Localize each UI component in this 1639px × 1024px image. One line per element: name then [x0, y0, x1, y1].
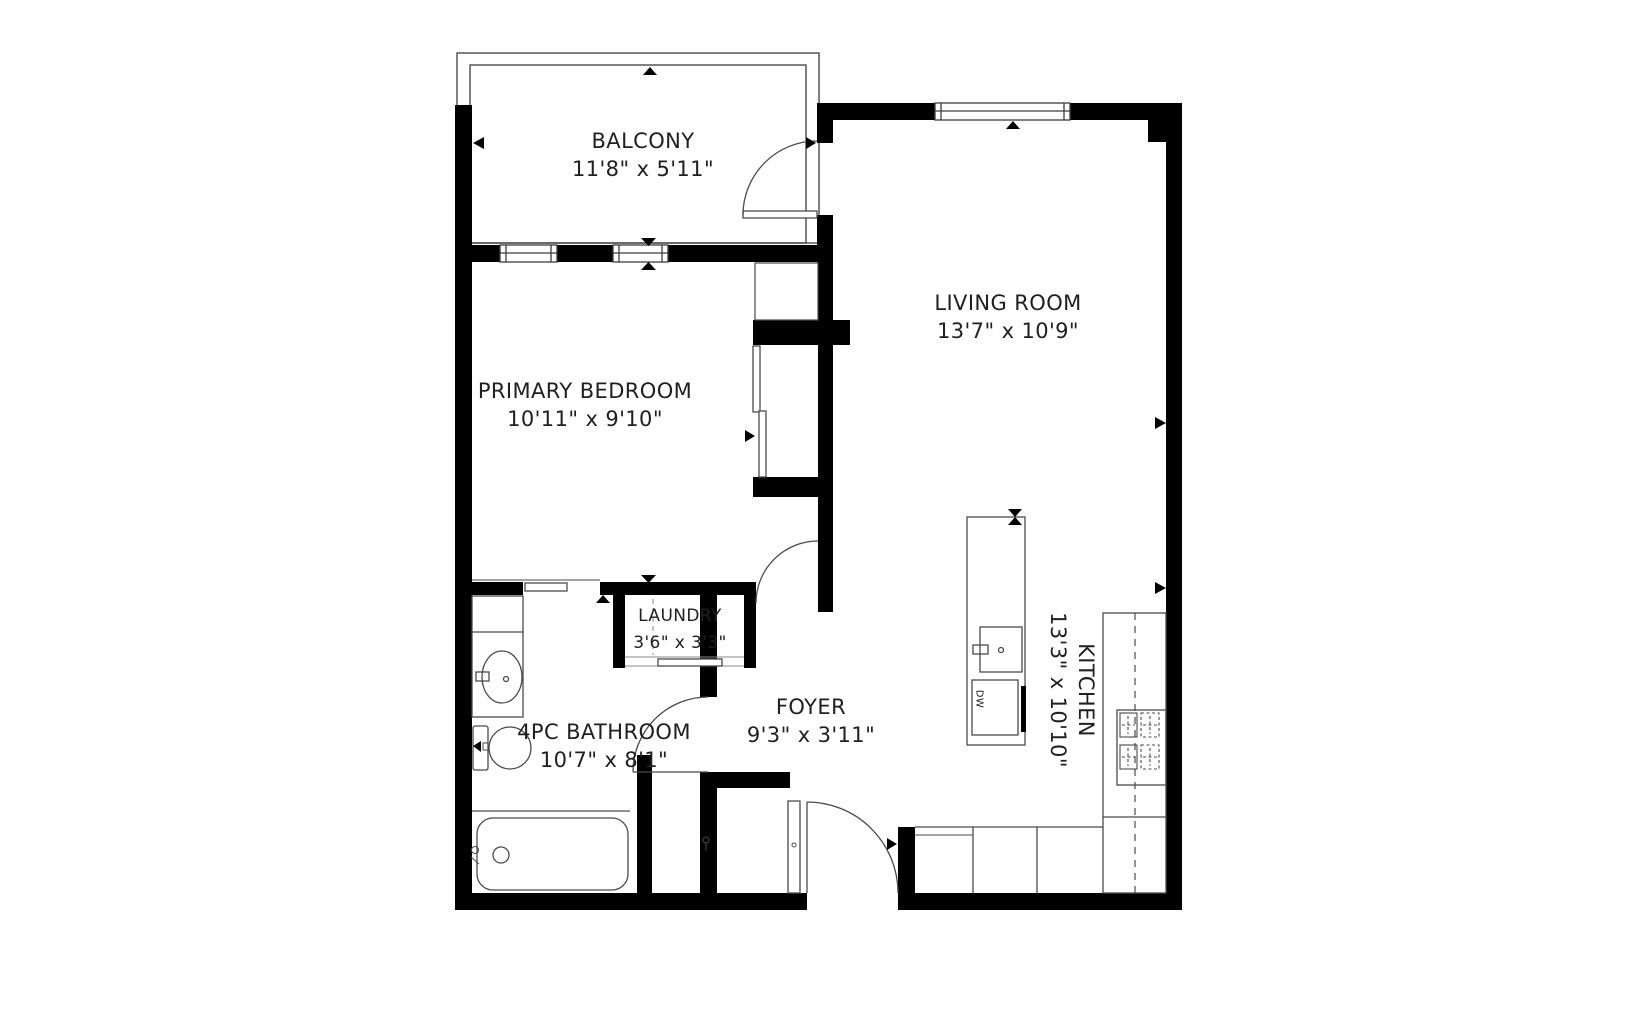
dishwasher-label: DW [974, 690, 985, 709]
arrow-right-icon [745, 430, 755, 442]
room-dims: 3'6" x 3'3" [633, 630, 727, 657]
wall-kitchen-stub [898, 827, 915, 893]
laundry-sliding-door [625, 657, 744, 666]
living-room-window [935, 103, 1070, 120]
floor-plan-drawing [0, 0, 1639, 1024]
wall-bedroom-top-c [668, 245, 833, 262]
arrow-right-icon [887, 838, 897, 850]
entry-door [807, 802, 898, 909]
arrow-up-icon [596, 595, 610, 603]
kitchen-island [967, 517, 1026, 745]
wall-laundry-left [613, 595, 625, 668]
kitchen-counter-bottom [915, 827, 1103, 893]
room-name: 4PC BATHROOM [517, 718, 691, 746]
wall-entry-closet-top [700, 772, 790, 788]
arrow-up-icon [641, 262, 656, 270]
wall-bedroom-top-b [557, 245, 613, 262]
room-name: FOYER [747, 693, 875, 721]
room-name: PRIMARY BEDROOM [478, 377, 692, 405]
wall-bathroom-top-b [600, 582, 756, 595]
laundry-label: LAUNDRY 3'6" x 3'3" [633, 603, 727, 657]
wall-closet-right [818, 345, 833, 477]
island-sink [980, 627, 1022, 672]
bedroom-window-2 [613, 245, 668, 262]
wall-bottom-left [455, 893, 807, 910]
living-room-niche [755, 263, 818, 320]
kitchen-label: KITCHEN 13'3" x 10'10" [1044, 612, 1100, 768]
room-name: BALCONY [572, 127, 714, 155]
stove-cooktop [1117, 710, 1166, 785]
wall-livingroom-top-a [817, 103, 935, 120]
room-name: LAUNDRY [633, 603, 727, 630]
primary-bedroom-label: PRIMARY BEDROOM 10'11" x 9'10" [478, 377, 692, 433]
kitchen-counter-right [1103, 613, 1166, 893]
arrow-right-icon [806, 137, 816, 149]
living-room-label: LIVING ROOM 13'7" x 10'9" [934, 289, 1081, 345]
wall-bedroom-top-a [455, 245, 500, 262]
appliance-name: DW [974, 690, 985, 709]
bedroom-closet-sliding-doors [753, 346, 766, 477]
arrow-up-icon [1006, 121, 1020, 129]
arrow-up-icon [643, 67, 657, 75]
wall-right [1166, 103, 1182, 910]
vanity-counter [472, 596, 523, 717]
wall-bottom-right [898, 893, 1182, 910]
room-name: LIVING ROOM [934, 289, 1081, 317]
walls [455, 103, 1182, 910]
wall-closet-bottom [753, 477, 833, 497]
arrow-down-icon [641, 575, 656, 583]
foyer-label: FOYER 9'3" x 3'11" [747, 693, 875, 749]
arrow-right-icon [1155, 582, 1166, 594]
room-dims: 10'7" x 8'1" [517, 746, 691, 774]
wall-corner-column [1148, 120, 1182, 142]
wall-laundry-right [744, 595, 756, 668]
wall-livingroom-left [818, 263, 833, 320]
arrow-right-icon [1155, 417, 1166, 429]
wall-balconydoor-top [817, 120, 833, 143]
bathtub [471, 811, 630, 890]
wall-left [455, 105, 472, 910]
wall-livingroom-top-b [1070, 103, 1166, 120]
entry-closet-door [788, 801, 800, 893]
wall-niche-bottom [753, 320, 850, 345]
bedroom-window-1 [500, 245, 557, 262]
wall-bathroom-top-a [472, 582, 523, 595]
room-dims: 13'3" x 10'10" [1044, 612, 1072, 768]
room-dims: 11'8" x 5'11" [572, 155, 714, 183]
wall-tub-side [637, 755, 652, 893]
room-dims: 9'3" x 3'11" [747, 721, 875, 749]
wall-entry-closet-left [700, 772, 717, 893]
bedroom-door [756, 541, 818, 603]
balcony-label: BALCONY 11'8" x 5'11" [572, 127, 714, 183]
floor-plan-page: BALCONY 11'8" x 5'11" LIVING ROOM 13'7" … [0, 0, 1639, 1024]
room-dims: 10'11" x 9'10" [478, 405, 692, 433]
room-name: KITCHEN [1072, 612, 1100, 768]
room-dims: 13'7" x 10'9" [934, 317, 1081, 345]
bathroom-sink [476, 651, 522, 703]
arrow-left-icon [473, 137, 484, 149]
bathroom-label: 4PC BATHROOM 10'7" x 8'1" [517, 718, 691, 774]
wall-bedroom-door-jamb [818, 497, 833, 612]
